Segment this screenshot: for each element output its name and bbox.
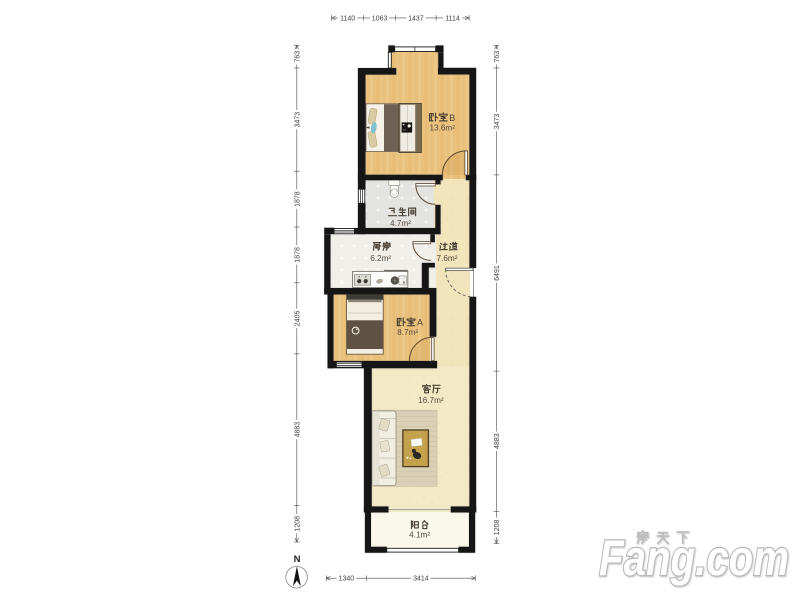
svg-text:6.2m²: 6.2m² [370, 254, 391, 263]
svg-text:1437: 1437 [408, 15, 424, 22]
svg-text:A: A [417, 318, 423, 328]
svg-text:1063: 1063 [372, 15, 388, 22]
svg-text:1208: 1208 [494, 520, 501, 536]
svg-text:Fang.com: Fang.com [599, 530, 789, 586]
svg-text:1878: 1878 [294, 247, 301, 263]
svg-text:16.7m²: 16.7m² [418, 396, 444, 405]
svg-text:1140: 1140 [340, 15, 355, 22]
svg-text:13.6m²: 13.6m² [430, 124, 456, 133]
svg-text:3414: 3414 [413, 576, 429, 583]
svg-text:3473: 3473 [294, 112, 301, 128]
svg-text:6491: 6491 [494, 265, 501, 281]
svg-text:1340: 1340 [339, 576, 355, 583]
svg-text:B: B [449, 113, 455, 123]
svg-text:N: N [294, 554, 301, 565]
svg-text:763: 763 [294, 51, 301, 63]
svg-text:1878: 1878 [294, 191, 301, 207]
svg-text:1114: 1114 [445, 15, 460, 22]
svg-text:4883: 4883 [494, 433, 501, 449]
svg-text:8.7m²: 8.7m² [397, 328, 418, 337]
svg-text:2405: 2405 [294, 311, 301, 327]
svg-text:4.7m²: 4.7m² [390, 219, 411, 228]
svg-text:763: 763 [494, 51, 501, 63]
svg-text:3473: 3473 [494, 114, 501, 130]
svg-text:4.1m²: 4.1m² [409, 530, 430, 539]
svg-text:1208: 1208 [294, 516, 301, 532]
svg-text:7.6m²: 7.6m² [437, 254, 458, 263]
svg-text:4883: 4883 [294, 422, 301, 438]
